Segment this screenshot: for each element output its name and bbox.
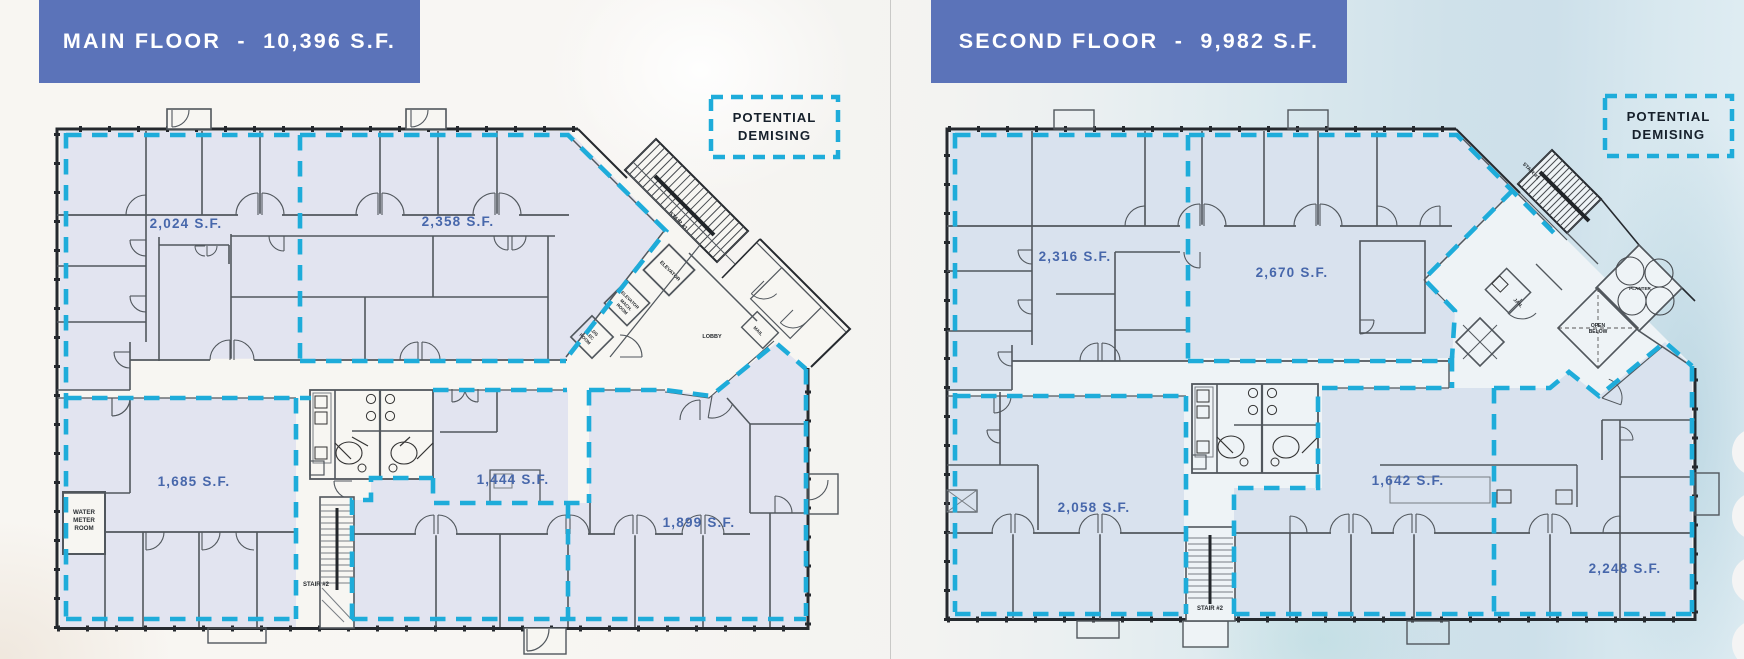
svg-text:2,058 S.F.: 2,058 S.F. <box>1058 500 1131 515</box>
svg-text:1,685 S.F.: 1,685 S.F. <box>158 474 231 489</box>
svg-text:METER: METER <box>73 517 95 524</box>
svg-text:STAIR #2: STAIR #2 <box>1197 606 1224 612</box>
svg-text:BELOW: BELOW <box>1589 329 1608 335</box>
svg-text:2,248 S.F.: 2,248 S.F. <box>1589 561 1662 576</box>
svg-text:1,899 S.F.: 1,899 S.F. <box>663 515 736 530</box>
svg-text:1,444 S.F.: 1,444 S.F. <box>477 472 550 487</box>
svg-text:1,642 S.F.: 1,642 S.F. <box>1372 473 1445 488</box>
svg-text:2,316 S.F.: 2,316 S.F. <box>1039 249 1112 264</box>
svg-text:2,024 S.F.: 2,024 S.F. <box>150 216 223 231</box>
svg-text:ROOM: ROOM <box>74 525 93 532</box>
svg-text:2,670 S.F.: 2,670 S.F. <box>1256 265 1329 280</box>
svg-text:STAIR #2: STAIR #2 <box>303 582 330 588</box>
svg-text:WATER: WATER <box>73 509 95 516</box>
svg-text:PLANTER: PLANTER <box>1629 286 1651 291</box>
svg-text:2,358 S.F.: 2,358 S.F. <box>422 214 495 229</box>
svg-text:LOBBY: LOBBY <box>702 334 722 340</box>
